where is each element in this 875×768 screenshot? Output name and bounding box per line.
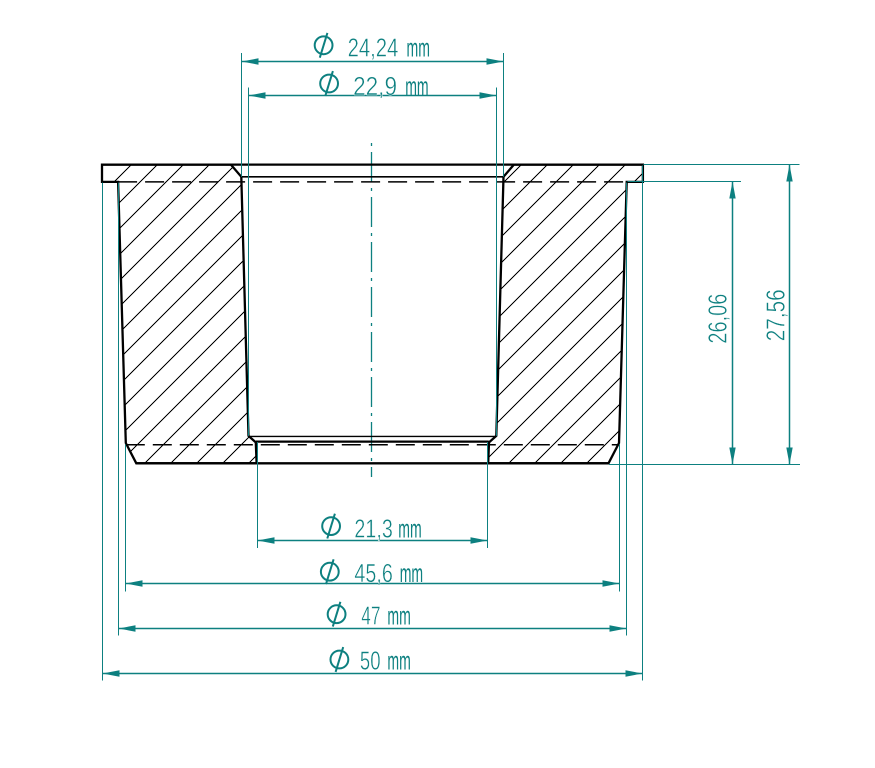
svg-text:mm: mm: [405, 71, 428, 101]
svg-text:21,3: 21,3: [354, 513, 392, 543]
svg-text:22,9: 22,9: [353, 71, 397, 101]
svg-text:26,06: 26,06: [702, 294, 732, 344]
svg-text:mm: mm: [398, 513, 421, 543]
svg-text:27,56: 27,56: [761, 289, 791, 341]
svg-text:mm: mm: [407, 32, 430, 62]
svg-text:mm: mm: [400, 558, 423, 588]
svg-text:24,24: 24,24: [348, 32, 399, 62]
svg-text:mm: mm: [387, 600, 410, 630]
svg-text:50: 50: [360, 646, 381, 676]
svg-text:45,6: 45,6: [354, 558, 392, 588]
svg-text:mm: mm: [387, 646, 410, 676]
svg-text:47: 47: [361, 600, 380, 630]
